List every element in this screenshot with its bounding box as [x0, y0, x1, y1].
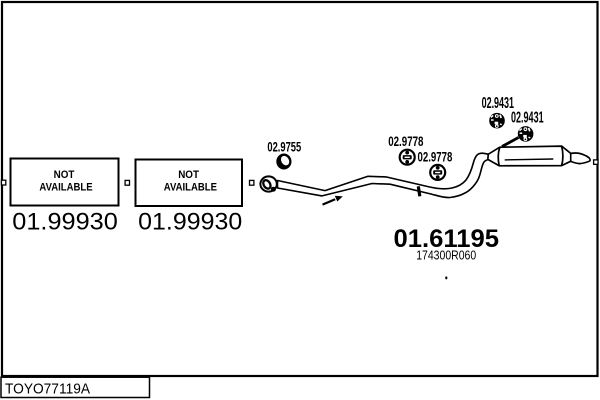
- svg-text:02.9778: 02.9778: [418, 149, 453, 165]
- svg-text:01.99930: 01.99930: [12, 209, 117, 236]
- svg-text:TOYO77119A: TOYO77119A: [5, 381, 90, 397]
- svg-text:NOT: NOT: [178, 169, 199, 181]
- svg-text:01.99930: 01.99930: [138, 209, 242, 236]
- svg-text:02.9778: 02.9778: [388, 134, 423, 150]
- svg-text:02.9431: 02.9431: [482, 95, 515, 112]
- svg-text:AVAILABLE: AVAILABLE: [39, 182, 92, 194]
- svg-text:02.9755: 02.9755: [267, 140, 301, 156]
- svg-text:AVAILABLE: AVAILABLE: [164, 182, 217, 194]
- svg-text:174300R060: 174300R060: [416, 247, 476, 262]
- svg-text:NOT: NOT: [54, 169, 75, 181]
- svg-text:02.9431: 02.9431: [511, 110, 544, 127]
